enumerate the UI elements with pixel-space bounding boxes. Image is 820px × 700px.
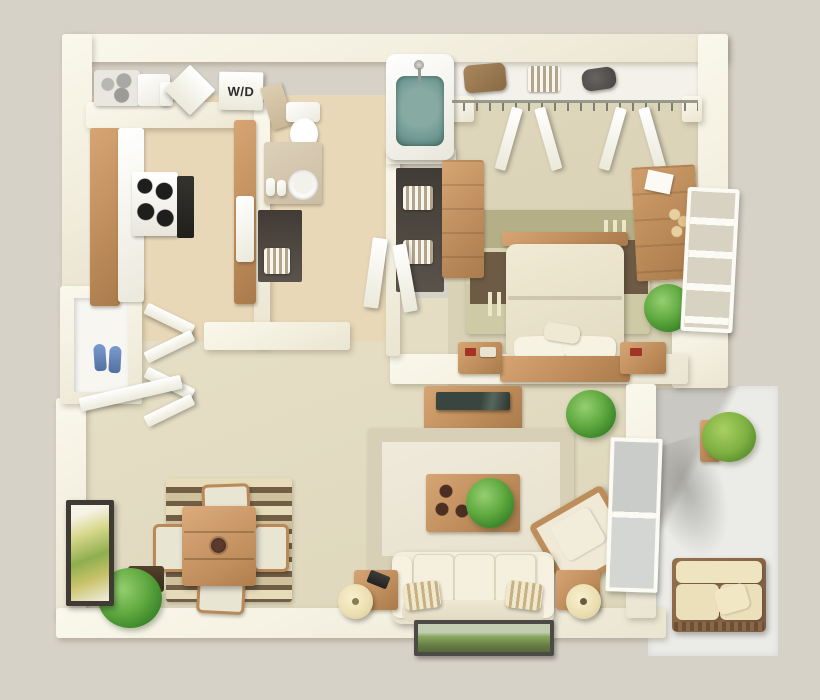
landscape-art-bottom (414, 620, 554, 656)
nightstand-left-tray (480, 347, 496, 357)
kitchen-oven-front (177, 176, 194, 238)
balcony-plant (702, 412, 756, 462)
toiletries (266, 178, 275, 196)
sofa-seat-2 (454, 554, 495, 604)
bedroom-window-blinds (680, 187, 739, 334)
dining-center-bowl (211, 538, 226, 553)
nightstand-right-red-item (630, 348, 642, 356)
shelf-rack (94, 70, 140, 106)
kitchen-dishwasher-front (236, 196, 254, 262)
wall-hall-bottom (204, 322, 350, 350)
lamp-left-finial (352, 598, 359, 605)
nightstand-right (620, 342, 666, 374)
bathtub-water (396, 76, 444, 146)
bed-duvet-fold (508, 296, 622, 300)
kitchen-cabinets-left (90, 128, 120, 306)
sofa-pillow-left (402, 580, 441, 611)
dining-table-seam (184, 531, 254, 533)
bench-front-trim (674, 622, 764, 631)
bench-seat-left (676, 584, 719, 620)
floorplan-render: W/D (0, 0, 820, 700)
washer-dryer-door: W/D (219, 72, 264, 111)
vanity-sink (288, 170, 318, 200)
closet-bag (463, 62, 507, 94)
linen-towels-left (264, 248, 290, 274)
shoe-right (108, 346, 121, 374)
closet-towel-stack (528, 66, 560, 92)
sliding-window (605, 437, 662, 593)
shoe-left (93, 344, 107, 372)
dining-chair-right (253, 524, 289, 572)
wall-art-botanical (66, 500, 114, 606)
dining-table-seam-2 (184, 558, 254, 560)
toiletries-2 (277, 180, 286, 196)
linen-towels-right-top (403, 186, 433, 210)
nightstand-left-red-book (465, 348, 476, 356)
lamp-right-finial (580, 598, 587, 605)
tall-chest (442, 160, 484, 278)
kitchen-range (132, 172, 178, 236)
closet-hanger-rod (452, 100, 698, 111)
tv-screen (436, 392, 510, 410)
coffee-table-plant (466, 478, 514, 528)
wall-left-upper (62, 34, 92, 294)
bathtub-faucet-stem (418, 68, 421, 82)
living-plant-by-window (566, 390, 616, 438)
sofa-pillow-right (504, 580, 543, 611)
bed-headboard (500, 356, 630, 382)
bench-back-cushion (676, 561, 762, 583)
